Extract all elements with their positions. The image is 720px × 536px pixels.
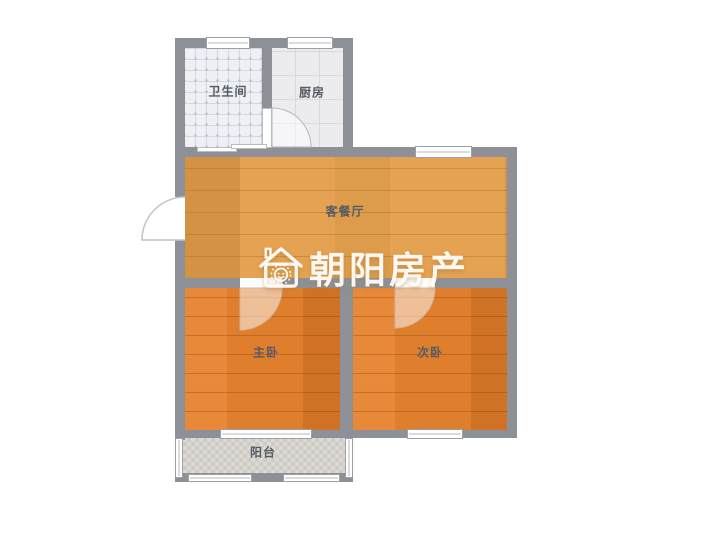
room-label-kitchen: 厨房	[299, 84, 325, 101]
window-balcony-side-left	[175, 438, 183, 478]
window-balcony-left	[188, 474, 252, 482]
window-master	[220, 429, 312, 439]
window-second	[407, 429, 463, 439]
house-logo-icon	[258, 245, 304, 289]
brand-watermark: 朝阳房产	[258, 240, 469, 294]
room-label-balcony: 阳台	[250, 444, 276, 461]
window-balcony-side-right	[345, 438, 353, 478]
door-opening-entry	[175, 197, 185, 240]
window-kitchen	[287, 37, 333, 49]
wall-bedroom-divider	[340, 288, 353, 430]
wall-bathroom-kitchen	[262, 38, 272, 108]
room-label-bathroom: 卫生间	[208, 83, 247, 100]
brand-name: 朝阳房产	[309, 240, 469, 294]
room-label-master: 主卧	[253, 344, 279, 361]
door-leaf-kitchen	[262, 108, 272, 148]
sliding-door-panel	[231, 144, 267, 149]
sliding-door-bathroom	[197, 143, 267, 153]
window-balcony-right	[283, 474, 340, 482]
window-bathroom	[206, 37, 250, 49]
room-label-living: 客餐厅	[325, 203, 364, 220]
wall-kitchen-right	[343, 38, 353, 157]
window-living	[415, 146, 472, 158]
floorplan-canvas: 卫生间 厨房 客餐厅 主卧 次卧 阳台 朝阳房产	[0, 0, 720, 536]
room-label-second: 次卧	[417, 344, 443, 361]
wall-right	[507, 147, 517, 438]
